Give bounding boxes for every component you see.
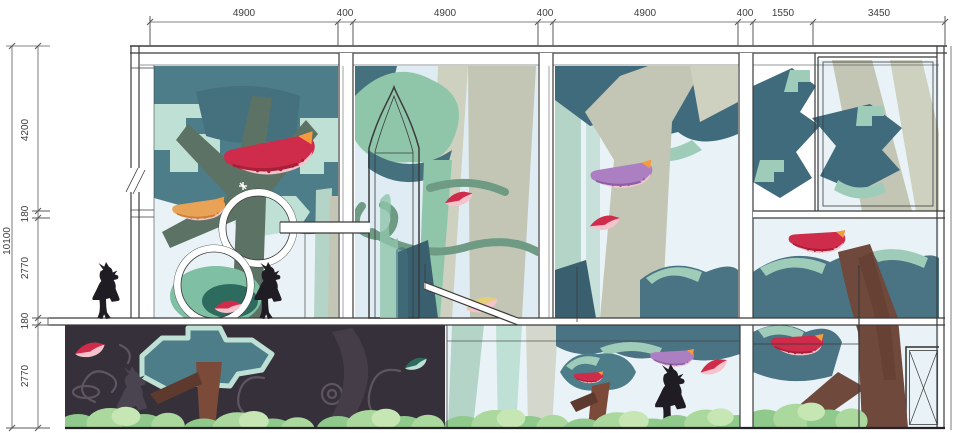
dim-label: 4900 [434,8,457,19]
mural-bay-4 [745,57,941,433]
elevation-sheet: 4900 400 4900 400 4900 400 1550 3450 420… [0,0,960,433]
left-wall [124,46,154,325]
elevation-drawing: 4900 400 4900 400 4900 400 1550 3450 420… [0,0,960,433]
girl-silhouette-1 [92,262,119,319]
column-3 [739,53,753,318]
dim-label: 2770 [20,364,31,387]
dim-label: 4900 [634,8,657,19]
dim-label: 180 [20,312,31,329]
dim-label: 400 [737,8,754,19]
dim-label: 180 [20,205,31,222]
dim-label: 2770 [20,256,31,279]
mural-bay-1 [154,66,338,326]
break-symbol [124,168,144,192]
mural-lower-dark [56,325,445,433]
dim-label: 4200 [20,118,31,141]
dim-label: 4900 [233,8,256,19]
right-wall [937,46,951,430]
column-2 [539,53,553,318]
dim-label: 400 [337,8,354,19]
dim-label: 3450 [868,8,891,19]
mural-bay-3 [555,66,738,318]
dim-label: 1550 [772,8,795,19]
dim-label: 400 [537,8,554,19]
floor-slab [48,318,945,325]
column-1 [339,53,353,318]
top-dimension-chain: 4900 400 4900 400 4900 400 1550 3450 [147,8,948,46]
dim-label-total: 10100 [2,227,13,255]
left-dimension-chain: 4200 180 2770 180 2770 10100 [2,43,50,431]
roof-slab [130,46,947,53]
column-3-lower [740,325,753,428]
